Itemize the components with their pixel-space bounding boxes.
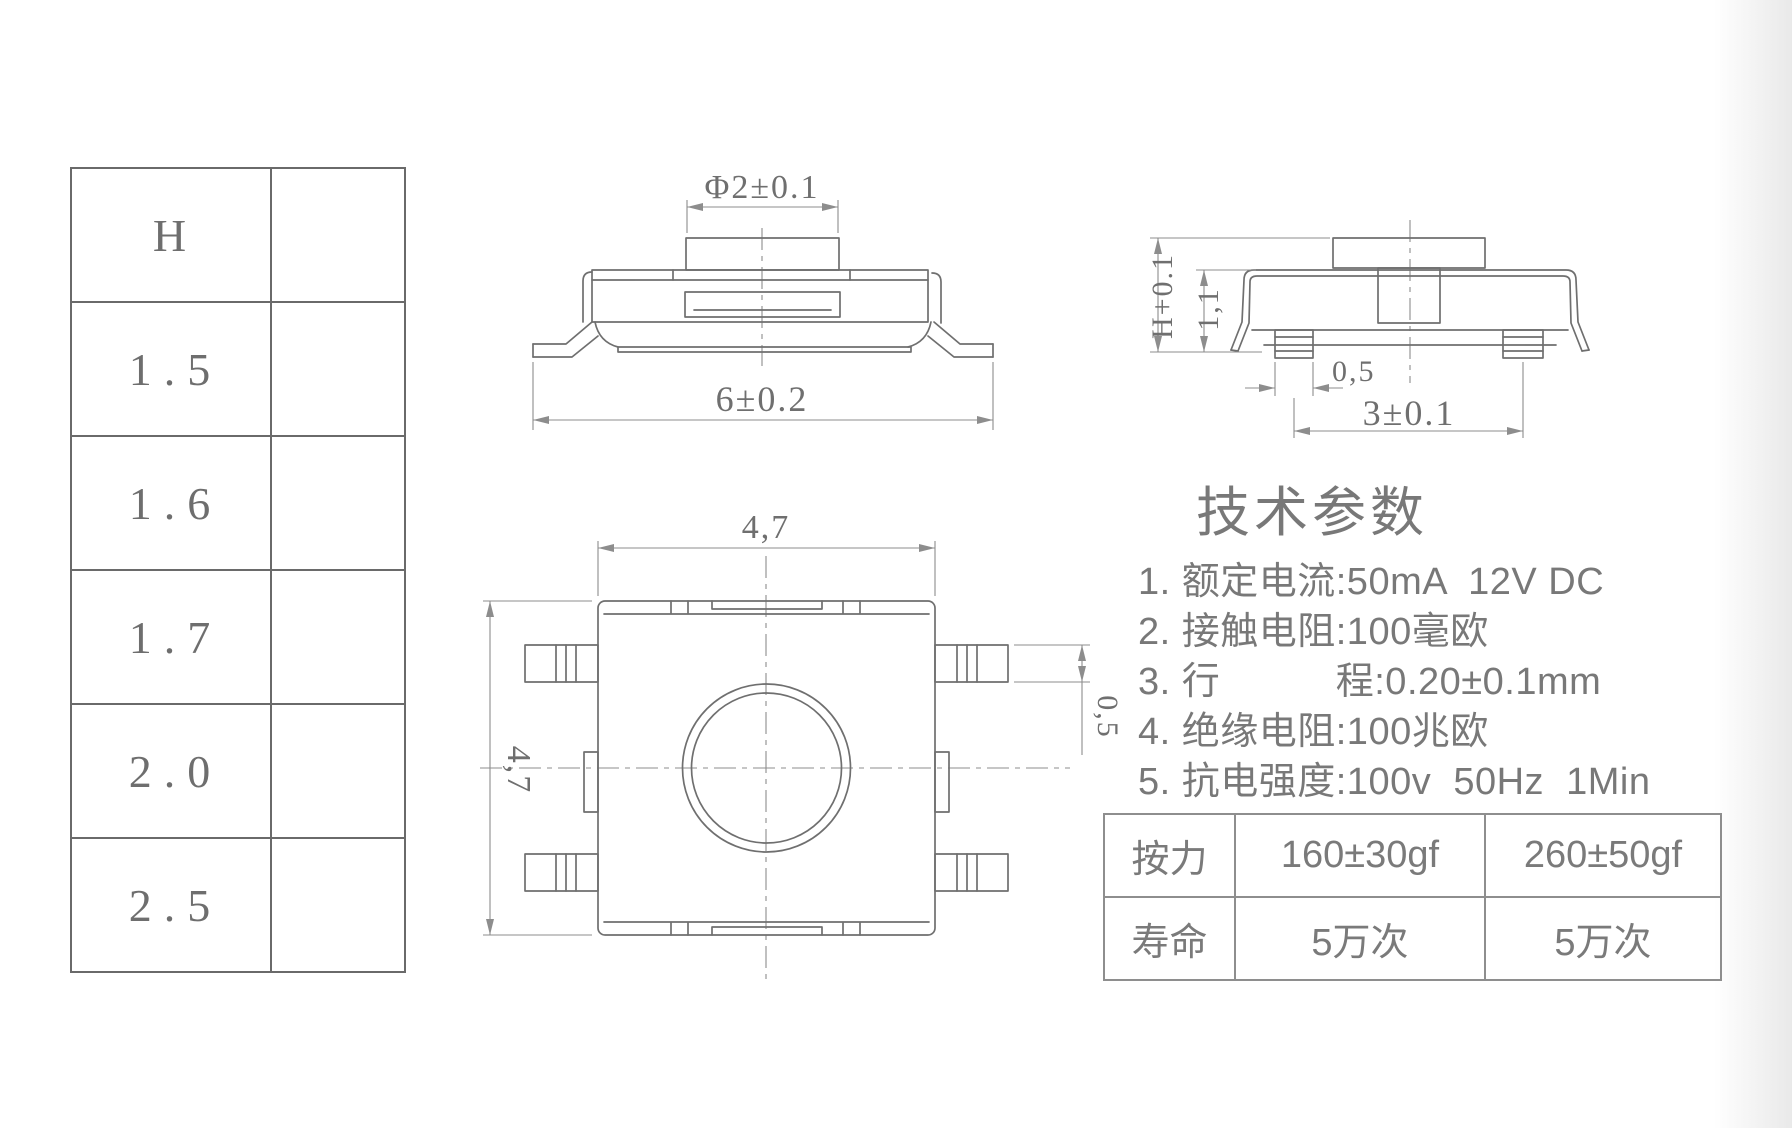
tech-param-line: 1. 额定电流:50mA 12V DC (1138, 557, 1698, 607)
front-view-drawing: H+0.1 1,1 0,5 3±0.1 (1146, 220, 1589, 438)
h-value-cell: 2.0 (71, 704, 271, 838)
tech-param-line: 5. 抗电强度:100v 50Hz 1Min (1138, 757, 1698, 807)
top-dim-width: 4,7 (742, 509, 791, 546)
force-life-table: 按力 160±30gf 260±50gf 寿命 5万次 5万次 (1103, 813, 1722, 981)
spec-value-cell: 5万次 (1235, 897, 1485, 980)
h-header-cell: H (71, 168, 271, 302)
h-value-cell: 1.7 (71, 570, 271, 704)
front-dim-total-height: H+0.1 (1146, 253, 1179, 339)
side-dim-button-diameter: Φ2±0.1 (704, 169, 819, 206)
table-row: 寿命 5万次 5万次 (1104, 897, 1721, 980)
h-value-cell: 1.6 (71, 436, 271, 570)
h-value-cell: 2.5 (71, 838, 271, 972)
front-dim-body-height: 1,1 (1192, 287, 1225, 331)
front-dim-leg-width: 0,5 (1332, 355, 1376, 388)
table-row: 2.0 (71, 704, 405, 838)
table-row: 2.5 (71, 838, 405, 972)
top-dim-leg-thickness: 0,5 (1091, 695, 1124, 739)
tech-param-line: 4. 绝缘电阻:100兆欧 (1138, 707, 1698, 757)
empty-cell (271, 436, 405, 570)
empty-cell (271, 838, 405, 972)
spec-value-cell: 160±30gf (1235, 814, 1485, 897)
tech-params-section: 技术参数 1. 额定电流:50mA 12V DC 2. 接触电阻:100毫欧 3… (1138, 468, 1698, 807)
side-view-drawing: Φ2±0.1 6±0.2 (533, 169, 993, 430)
side-dim-body-width: 6±0.2 (716, 379, 809, 419)
table-row: H (71, 168, 405, 302)
height-options-table: H 1.5 1.6 1.7 2.0 2.5 (70, 167, 406, 973)
top-view-drawing: 4,7 4,7 0,5 (480, 509, 1124, 985)
table-row: 1.6 (71, 436, 405, 570)
table-row: 1.5 (71, 302, 405, 436)
empty-cell (271, 570, 405, 704)
front-dim-leg-pitch: 3±0.1 (1363, 393, 1456, 433)
empty-cell (271, 168, 405, 302)
empty-cell (271, 302, 405, 436)
empty-cell (271, 704, 405, 838)
tech-param-line: 2. 接触电阻:100毫欧 (1138, 607, 1698, 657)
spec-value-cell: 5万次 (1485, 897, 1721, 980)
spec-value-cell: 260±50gf (1485, 814, 1721, 897)
tech-params-title: 技术参数 (1196, 468, 1698, 547)
table-row: 1.7 (71, 570, 405, 704)
h-value-cell: 1.5 (71, 302, 271, 436)
spec-label-cell: 寿命 (1104, 897, 1235, 980)
table-row: 按力 160±30gf 260±50gf (1104, 814, 1721, 897)
top-dim-height: 4,7 (500, 746, 537, 795)
spec-label-cell: 按力 (1104, 814, 1235, 897)
tech-param-line: 3. 行 程:0.20±0.1mm (1138, 657, 1698, 707)
